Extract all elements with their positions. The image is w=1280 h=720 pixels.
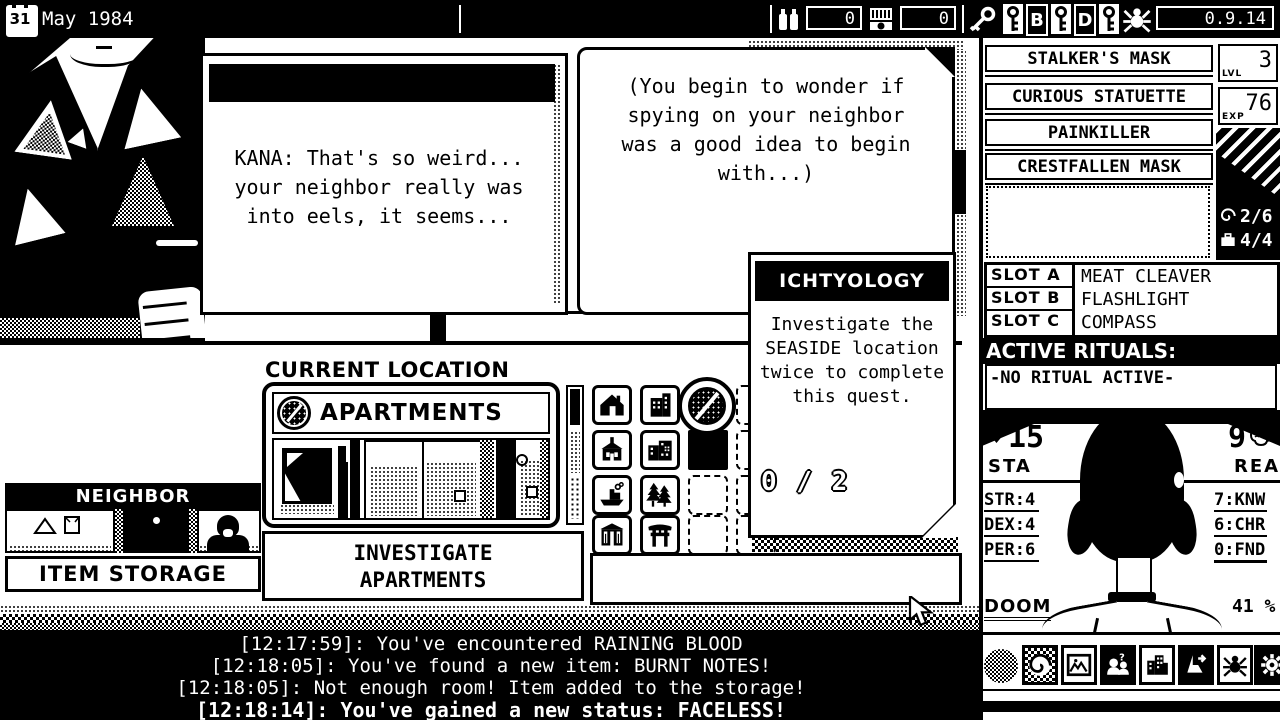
location-tile-apartments-current[interactable] (678, 377, 736, 435)
inventory-item[interactable]: STALKER'S MASK (985, 45, 1213, 72)
settings-menu-icon[interactable] (1254, 645, 1280, 685)
location-tile-empty-5 (688, 515, 728, 555)
spider-icon (1122, 4, 1152, 34)
location-tile-school[interactable] (592, 430, 632, 470)
log-line-newest: [12:18:14]: You've gained a new status: … (0, 699, 982, 720)
slot-label: SLOT B (987, 288, 1060, 307)
mouse-cursor (908, 596, 936, 628)
quest-progress: 0 / 2 (761, 467, 849, 497)
narration-line: spying on your neighbor (580, 101, 952, 130)
rea-label: REA (1234, 456, 1280, 477)
rituals-header-bar: ACTIVE RITUALS: (982, 338, 1280, 364)
str-stat: STR:4 (984, 490, 1039, 512)
player-portrait (1042, 410, 1222, 635)
neighbor-panel[interactable]: NEIGHBOR (5, 483, 261, 553)
matches-icon (868, 5, 894, 33)
rituals-box: -NO RITUAL ACTIVE- (985, 364, 1277, 410)
quest-line: this quest. (751, 385, 953, 409)
svg-text:?: ? (1119, 653, 1125, 664)
investigate-line: APARTMENTS (265, 567, 581, 594)
spiral-counter: 2/6 (1240, 206, 1273, 227)
character-panel: ♥ 15 STA 9 REA STR:4 DEX:4 PER:6 7:KNW 6… (982, 410, 1280, 635)
log-line: [12:17:59]: You've encountered RAINING B… (0, 630, 982, 655)
ammo-counter: 0 (806, 6, 862, 30)
briefcase-icon (1220, 232, 1236, 248)
slot-b-label-cell[interactable]: SLOT B (987, 288, 1075, 311)
exp-box: EXP 76 (1218, 87, 1278, 125)
quest-line: twice to complete (751, 361, 953, 385)
exp-value: 76 (1246, 91, 1273, 116)
quest-line: SEASIDE location (751, 337, 953, 361)
kana-portrait-art (0, 38, 205, 344)
slot-label: SLOT A (987, 265, 1061, 284)
current-location-header: CURRENT LOCATION (265, 358, 509, 382)
right-column-divider (979, 38, 983, 720)
log-line: [12:18:05]: Not enough room! Item added … (0, 677, 982, 699)
sta-value: 15 (1008, 420, 1044, 455)
quest-title-bar: ICHTYOLOGY (755, 261, 949, 301)
topbar-divider (459, 5, 461, 33)
event-log: [12:17:59]: You've encountered RAINING B… (0, 630, 982, 720)
key-tile-icon (1003, 4, 1023, 34)
location-tile-home[interactable] (592, 385, 632, 425)
slot-b-item[interactable]: FLASHLIGHT (1081, 289, 1189, 310)
location-tile-shrine[interactable] (640, 515, 680, 555)
bag-counter: 4/4 (1240, 230, 1273, 251)
slot-c-item[interactable]: COMPASS (1081, 312, 1157, 333)
characters-menu-icon[interactable]: ? (1100, 645, 1136, 685)
exp-label: EXP (1222, 112, 1245, 122)
location-panel: APARTMENTS (262, 382, 560, 528)
location-name-row: APARTMENTS (272, 392, 550, 434)
moon-menu-icon[interactable] (984, 649, 1018, 683)
doom-label: DOOM (984, 596, 1051, 621)
narration-line: with...) (580, 159, 952, 188)
dialogue-line: KANA: That's so weird... (203, 144, 555, 173)
level-value: 3 (1259, 48, 1272, 73)
key-tile-icon-2 (1051, 4, 1071, 34)
topbar-divider-3 (962, 5, 964, 33)
slot-a-item[interactable]: MEAT CLEAVER (1081, 266, 1211, 287)
level-box: LVL 3 (1218, 44, 1278, 82)
location-tile-forest[interactable] (640, 475, 680, 515)
location-tile-harbor[interactable] (592, 475, 632, 515)
dither-fade (0, 605, 982, 632)
log-line: [12:18:05]: You've found a new item: BUR… (0, 655, 982, 677)
heart-icon: ♥ (988, 428, 1006, 446)
rituals-header: ACTIVE RITUALS: (982, 338, 1280, 364)
rune-tile-b: B (1026, 4, 1048, 36)
matches-counter: 0 (900, 6, 956, 30)
key-icon (968, 5, 998, 33)
spider-menu-icon[interactable] (1217, 645, 1253, 685)
version-label: 0.9.14 (1156, 6, 1274, 30)
slots-table: SLOT A MEAT CLEAVER SLOT B FLASHLIGHT SL… (984, 262, 1280, 338)
investigate-button[interactable]: INVESTIGATE APARTMENTS (262, 531, 584, 601)
dex-stat: DEX:4 (984, 515, 1039, 537)
menu-icon-row: ? (982, 635, 1280, 712)
narration-line: (You begin to wonder if (580, 72, 952, 101)
location-tile-mansion[interactable] (592, 515, 632, 555)
rea-value: 9 (1228, 420, 1246, 455)
slot-label: SLOT C (987, 311, 1060, 330)
quest-line: Investigate the (751, 313, 953, 337)
per-stat: PER:6 (984, 540, 1039, 562)
investigate-line: INVESTIGATE (265, 540, 581, 567)
date-label: May 1984 (42, 8, 134, 30)
rune-tile-d: D (1074, 4, 1096, 36)
inventory-item[interactable]: CURIOUS STATUETTE (985, 83, 1213, 110)
key-tile-icon-3 (1099, 4, 1119, 34)
spiral-menu-icon[interactable] (1022, 645, 1058, 685)
location-name: APARTMENTS (320, 400, 503, 426)
calendar-icon: 31 (6, 5, 38, 37)
bottles-icon (778, 6, 802, 32)
brain-icon (1248, 424, 1274, 446)
dialogue-box[interactable]: KANA: That's so weird... your neighbor r… (200, 53, 568, 315)
neighbor-scene-1 (5, 509, 115, 553)
neighbor-title: NEIGHBOR (5, 483, 261, 509)
location-tile-blocked (688, 430, 728, 470)
location-scene-art (272, 438, 550, 520)
right-column-art: 2/6 4/4 (1216, 128, 1280, 260)
slot-a-label-cell[interactable]: SLOT A (987, 265, 1075, 288)
sta-label: STA (988, 456, 1032, 477)
item-description-box (986, 186, 1210, 258)
top-bar: 31 May 1984 0 0 B D (0, 0, 1280, 38)
location-circle-icon (277, 396, 311, 430)
band-marker (430, 315, 446, 341)
location-tile-hospital[interactable] (640, 430, 680, 470)
dialogue-line: into eels, it seems... (203, 202, 555, 231)
level-label: LVL (1222, 69, 1242, 79)
painting-menu-icon[interactable] (1061, 645, 1097, 685)
dialogue-header-bar (209, 64, 555, 102)
neighbor-scene-2 (115, 509, 197, 553)
empty-message-box (590, 553, 962, 605)
item-storage-button[interactable]: ITEM STORAGE (5, 556, 261, 592)
doom-value: 41 % (1232, 596, 1275, 617)
location-tile-empty-3 (688, 475, 728, 515)
slot-c-label-cell[interactable]: SLOT C (987, 311, 1075, 335)
travel-menu-icon[interactable] (1178, 645, 1214, 685)
dialogue-line: your neighbor really was (203, 173, 555, 202)
neighbor-portrait (197, 509, 261, 553)
location-tile-downtown[interactable] (640, 385, 680, 425)
map-scrollbar[interactable] (566, 385, 584, 525)
inventory-item[interactable]: PAINKILLER (985, 119, 1213, 146)
inventory-item[interactable]: CRESTFALLEN MASK (985, 153, 1213, 180)
spiral-counter-icon (1220, 208, 1236, 224)
city-menu-icon[interactable] (1139, 645, 1175, 685)
topbar-divider-2 (770, 5, 772, 33)
quest-box[interactable]: ICHTYOLOGY Investigate the SEASIDE locat… (748, 252, 956, 538)
narration-line: was a good idea to begin (580, 130, 952, 159)
game-screen: 31 May 1984 0 0 B D (0, 0, 1280, 720)
